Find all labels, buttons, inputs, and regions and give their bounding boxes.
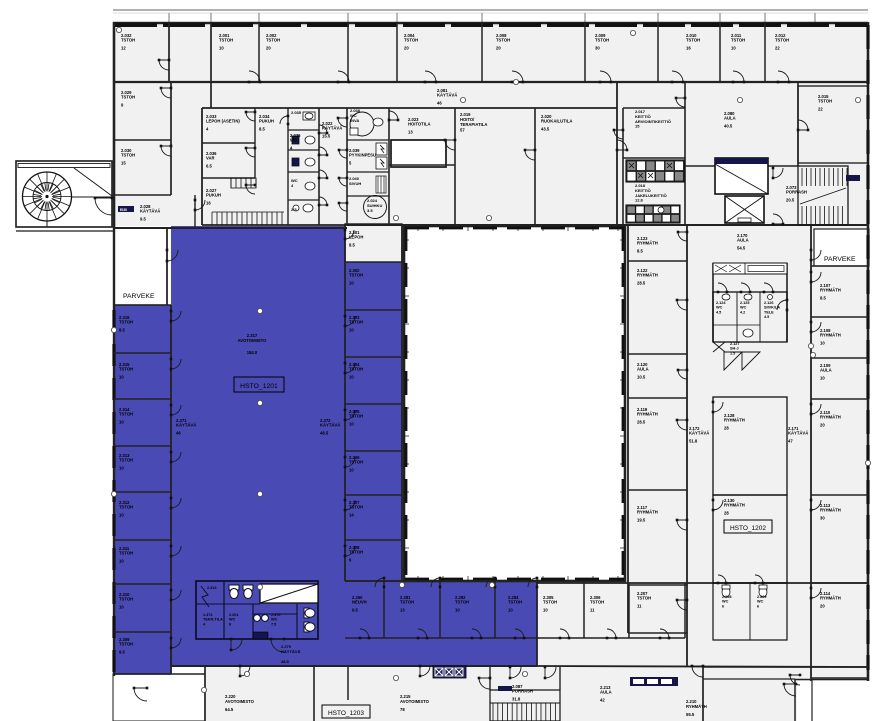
svg-text:78: 78 bbox=[400, 707, 405, 712]
svg-text:8.5: 8.5 bbox=[259, 127, 265, 132]
svg-text:22: 22 bbox=[775, 46, 780, 51]
svg-text:EI30: EI30 bbox=[120, 208, 127, 212]
svg-text:55.5: 55.5 bbox=[686, 712, 695, 717]
svg-text:10: 10 bbox=[119, 513, 124, 518]
svg-text:HSTO_1202: HSTO_1202 bbox=[730, 525, 766, 532]
svg-text:10: 10 bbox=[219, 46, 224, 51]
svg-text:43.5: 43.5 bbox=[541, 127, 550, 132]
svg-text:9.5: 9.5 bbox=[352, 608, 358, 613]
svg-text:20.5: 20.5 bbox=[786, 198, 795, 203]
svg-text:13: 13 bbox=[408, 130, 413, 135]
svg-text:10: 10 bbox=[731, 46, 736, 51]
svg-text:10.5: 10.5 bbox=[637, 375, 646, 380]
svg-text:6.5: 6.5 bbox=[206, 164, 212, 169]
svg-text:10: 10 bbox=[349, 328, 354, 333]
svg-text:9.5: 9.5 bbox=[119, 650, 125, 655]
svg-text:10: 10 bbox=[119, 605, 124, 610]
svg-text:10: 10 bbox=[349, 375, 354, 380]
svg-text:51.8: 51.8 bbox=[689, 439, 698, 444]
svg-text:14: 14 bbox=[349, 513, 354, 518]
svg-text:13: 13 bbox=[400, 608, 405, 613]
svg-text:20: 20 bbox=[820, 423, 825, 428]
svg-text:2.313: 2.313 bbox=[207, 586, 217, 590]
svg-text:10: 10 bbox=[119, 466, 124, 471]
svg-text:28: 28 bbox=[724, 426, 729, 431]
svg-text:30: 30 bbox=[820, 516, 825, 521]
svg-text:2.080AULA: 2.080AULA bbox=[724, 111, 736, 121]
svg-text:48.5: 48.5 bbox=[281, 659, 290, 664]
svg-text:10: 10 bbox=[543, 608, 548, 613]
svg-text:28.5: 28.5 bbox=[637, 420, 646, 425]
svg-text:HSTO_1201: HSTO_1201 bbox=[240, 383, 278, 390]
svg-text:22: 22 bbox=[818, 107, 823, 112]
svg-text:19.5: 19.5 bbox=[637, 518, 646, 523]
svg-text:10: 10 bbox=[119, 375, 124, 380]
svg-text:31.8: 31.8 bbox=[512, 697, 521, 702]
svg-text:2.120AULA: 2.120AULA bbox=[637, 362, 649, 372]
svg-text:8.5: 8.5 bbox=[820, 296, 826, 301]
svg-text:42: 42 bbox=[600, 698, 605, 703]
svg-text:20: 20 bbox=[496, 46, 501, 51]
svg-text:48.5: 48.5 bbox=[320, 431, 329, 436]
svg-text:10: 10 bbox=[820, 341, 825, 346]
svg-text:10: 10 bbox=[349, 468, 354, 473]
svg-text:10: 10 bbox=[119, 559, 124, 564]
svg-text:10: 10 bbox=[349, 281, 354, 286]
svg-text:40.5: 40.5 bbox=[724, 124, 733, 129]
svg-text:28: 28 bbox=[724, 511, 729, 516]
svg-text:2.5: 2.5 bbox=[291, 207, 297, 212]
svg-text:2.213AULA: 2.213AULA bbox=[600, 685, 612, 695]
svg-text:10: 10 bbox=[349, 422, 354, 427]
svg-text:46: 46 bbox=[176, 431, 181, 436]
svg-text:12: 12 bbox=[121, 46, 126, 51]
svg-text:11: 11 bbox=[590, 608, 595, 613]
svg-text:PARVEKE: PARVEKE bbox=[123, 293, 155, 300]
svg-text:16: 16 bbox=[206, 201, 211, 206]
svg-text:10: 10 bbox=[508, 608, 513, 613]
svg-text:28.5: 28.5 bbox=[637, 281, 646, 286]
svg-text:8.5: 8.5 bbox=[119, 328, 125, 333]
svg-text:20: 20 bbox=[266, 46, 271, 51]
svg-text:16: 16 bbox=[686, 46, 691, 51]
svg-text:20: 20 bbox=[820, 604, 825, 609]
svg-text:10: 10 bbox=[820, 376, 825, 381]
svg-text:8.5: 8.5 bbox=[637, 249, 643, 254]
svg-text:20: 20 bbox=[404, 46, 409, 51]
svg-text:10: 10 bbox=[455, 608, 460, 613]
svg-text:15: 15 bbox=[121, 161, 126, 166]
svg-text:2.109AULA: 2.109AULA bbox=[820, 363, 832, 373]
svg-text:8.5: 8.5 bbox=[349, 243, 355, 248]
svg-text:54.5: 54.5 bbox=[737, 246, 746, 251]
svg-text:64.5: 64.5 bbox=[225, 707, 234, 712]
svg-text:15.5: 15.5 bbox=[322, 134, 331, 139]
svg-text:46: 46 bbox=[437, 101, 442, 106]
svg-text:HSTO_1203: HSTO_1203 bbox=[328, 710, 364, 717]
svg-text:2.035: 2.035 bbox=[291, 110, 302, 115]
svg-text:184.0: 184.0 bbox=[247, 350, 258, 355]
svg-text:PARVEKE: PARVEKE bbox=[824, 256, 856, 263]
svg-text:30: 30 bbox=[595, 46, 600, 51]
svg-text:2.170AULA: 2.170AULA bbox=[737, 233, 749, 243]
svg-text:47: 47 bbox=[788, 439, 793, 444]
svg-text:11: 11 bbox=[637, 604, 642, 609]
svg-text:9.5: 9.5 bbox=[140, 217, 146, 222]
svg-text:10: 10 bbox=[119, 420, 124, 425]
